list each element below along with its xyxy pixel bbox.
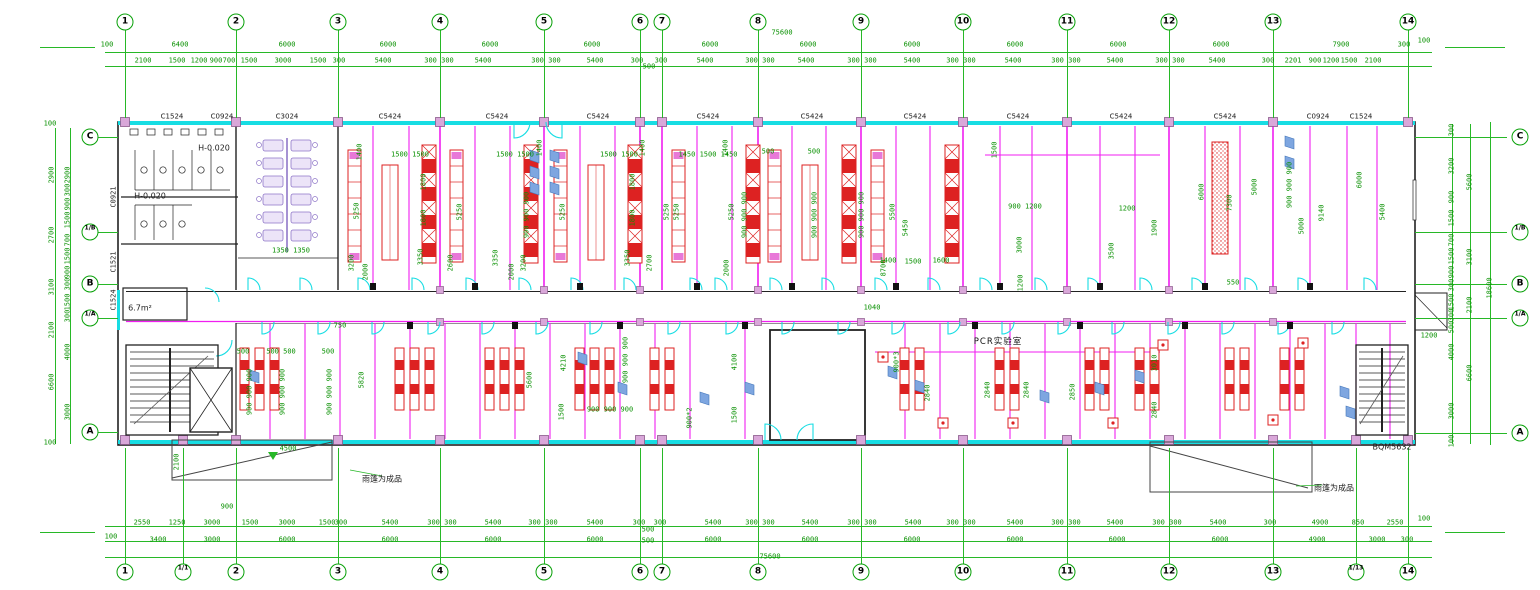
dimension-label: 300 (1264, 520, 1277, 527)
dimension-label: 6000 (382, 537, 399, 544)
dimension-label: 6000 (485, 537, 502, 544)
dimension-label: 5400 (1007, 520, 1024, 527)
window-code-label: C5424 (801, 114, 824, 121)
dimension-label: 6000 (1199, 184, 1206, 201)
axis-extension-top (338, 30, 339, 118)
dimension-label: 3200 (521, 255, 528, 272)
dimension-label: 5400 (1380, 204, 1387, 221)
window-code-label: C1521 (111, 251, 118, 272)
annotation-label: H-0.020 (134, 192, 166, 201)
dimension-label: 2840 (925, 385, 932, 402)
dimension-label: 1400 (880, 258, 897, 265)
dimension-label: 2840 (1152, 402, 1159, 419)
bottom-dim-line (105, 541, 1432, 542)
window-code-label: C5424 (1214, 114, 1237, 121)
axis-bubble-right-C: C (1512, 129, 1529, 146)
dimension-label: 5400 (904, 58, 921, 65)
dimension-label: 700 (1449, 234, 1456, 247)
dimension-label: 1250 (169, 520, 186, 527)
axis-bubble-bottom-11: 11 (1059, 564, 1076, 581)
axis-extension-bottom (1067, 448, 1068, 564)
dimension-label: 1500 (1449, 248, 1456, 265)
dimension-label: 300 300 (745, 58, 775, 65)
dimension-label: 5250 (354, 203, 361, 220)
dimension-label: 300 300 (847, 58, 877, 65)
dimension-label: 1500 (65, 294, 72, 311)
dimension-label: 300 300 (1155, 58, 1185, 65)
dimension-label: 900 900 900 (327, 369, 334, 415)
dimension-label: 900 900 900 (247, 369, 254, 415)
dimension-label: 2840 (1024, 382, 1031, 399)
dimension-label: 500 (808, 149, 821, 156)
dimension-label: 1500 (559, 404, 566, 421)
dimension-label: 1400 (640, 140, 647, 157)
axis-bubble-left-C: C (82, 129, 99, 146)
axis-extension-top (236, 30, 237, 118)
window-code-label: C0921 (111, 186, 118, 207)
axis-extension-top (1067, 30, 1068, 118)
dimension-label: 1500 (241, 58, 258, 65)
dimension-label: 900 (65, 198, 72, 211)
dimension-label: 500 (643, 64, 656, 71)
dimension-label: 3100 (49, 279, 56, 296)
axis-extension-top (662, 30, 663, 118)
dimension-label: 5600 (527, 372, 534, 389)
dimension-label: 900 900 900 (524, 192, 531, 238)
corner-dim (40, 47, 95, 48)
dimension-label: 300 300 (1152, 520, 1182, 527)
dimension-label: 300 300 (745, 520, 775, 527)
dimension-label: 2700 (49, 227, 56, 244)
window-code-label: C1524 (1350, 114, 1373, 121)
dimension-label: 2700 (647, 255, 654, 272)
axis-extension-bottom (963, 448, 964, 564)
axis-extension-bottom (861, 448, 862, 564)
dimension-label: 3000 (1449, 403, 1456, 420)
axis-extension-bottom (125, 448, 126, 564)
dimension-label: 3400 (150, 537, 167, 544)
dimension-label: 6000 (587, 537, 604, 544)
dimension-label: 1500 (242, 520, 259, 527)
dimension-label: 75600 (771, 30, 792, 37)
dimension-label: 6400 (172, 42, 189, 49)
annotation-label: H-0.020 (198, 144, 230, 153)
dimension-label: 300 (1449, 124, 1456, 137)
axis-extension-bottom (338, 448, 339, 564)
window-code-label: C5424 (486, 114, 509, 121)
axis-bubble-top-7: 7 (654, 14, 671, 31)
dimension-label: 4000 (65, 344, 72, 361)
dimension-label: 3500 (1109, 243, 1116, 260)
axis-bubble-top-13: 13 (1265, 14, 1282, 31)
dimension-label: 9140 (1319, 205, 1326, 222)
dimension-label: 300 300 (528, 520, 558, 527)
dimension-label: 5400 (587, 520, 604, 527)
dimension-label: 6000 (1109, 537, 1126, 544)
axis-extension-bottom (1169, 448, 1170, 564)
dimension-label: 900 (65, 266, 72, 279)
axis-bubble-bottom-1/1: 1/1 (175, 564, 192, 581)
annotation-label: PCR实验室 (974, 335, 1022, 347)
dimension-label: 1800 (421, 174, 428, 191)
axis-extension-top (544, 30, 545, 118)
dimension-label: 750 (334, 323, 347, 330)
dimension-label: 6000 (482, 42, 499, 49)
dimension-label: 2000 (363, 264, 370, 281)
dimension-label: 4100 (732, 354, 739, 371)
axis-extension-bottom (662, 448, 663, 564)
dimension-label: 6000 (904, 537, 921, 544)
window-code-label: C5424 (1110, 114, 1133, 121)
dimension-label: 1500 (905, 259, 922, 266)
axis-extension-top (963, 30, 964, 118)
axis-extension-left (98, 137, 118, 138)
dimension-label: 500 (237, 349, 250, 356)
dimension-label: 100 (44, 121, 57, 128)
lab-benches-north (348, 142, 1228, 263)
dimension-label: 2550 (1387, 520, 1404, 527)
dimension-label: 5400 (382, 520, 399, 527)
dimension-label: 5400 (1210, 520, 1227, 527)
dimension-label: 300 (1449, 279, 1456, 292)
dimension-label: 900 900 900 (742, 192, 749, 238)
axis-extension-bottom (236, 448, 237, 564)
window-code-label: C5424 (697, 114, 720, 121)
dimension-label: 6000 (1212, 537, 1229, 544)
dimension-label: 300 300 (946, 520, 976, 527)
dimension-label: 1200 (1421, 333, 1438, 340)
floor-plan-drawing (0, 0, 1540, 590)
dimension-label: 1500 (319, 520, 336, 527)
axis-bubble-top-6: 6 (632, 14, 649, 31)
dimension-label: 5000 (1299, 218, 1306, 235)
dimension-label: 5400 (1107, 520, 1124, 527)
dimension-label: 300 (65, 184, 72, 197)
dimension-label: 7300 (1227, 195, 1234, 212)
dimension-label: 4210 (561, 355, 568, 372)
dimension-label: 1500 1500 (600, 152, 638, 159)
dimension-label: 2100 (135, 58, 152, 65)
dimension-label: 2850 (1070, 384, 1077, 401)
axis-bubble-bottom-1: 1 (117, 564, 134, 581)
dimension-label: 5400 (697, 58, 714, 65)
north-window-band (118, 121, 1415, 125)
dimension-label: 500 (1449, 321, 1456, 334)
dimension-label: 500 (642, 527, 655, 534)
axis-extension-right (1415, 318, 1507, 319)
dimension-label: 900 900 900 (623, 337, 630, 383)
dimension-label: 3000 (1369, 537, 1386, 544)
axis-extension-top (440, 30, 441, 118)
dimension-label: 5400 (802, 520, 819, 527)
axis-extension-bottom (640, 448, 641, 564)
dimension-label: 100 (101, 42, 114, 49)
axis-extension-bottom (544, 448, 545, 564)
dimension-label: 300 300 (531, 58, 561, 65)
dimension-label: 75600 (759, 554, 780, 561)
axis-bubble-right-1/A: 1/A (1512, 310, 1529, 327)
dimension-label: 1500 (1341, 58, 1358, 65)
axis-extension-bottom (758, 448, 759, 564)
axis-bubble-top-1: 1 (117, 14, 134, 31)
dimension-label: 5400 (1005, 58, 1022, 65)
dimension-label: 300 300 (1051, 58, 1081, 65)
corner-dim (1445, 532, 1505, 533)
axis-bubble-bottom-6: 6 (632, 564, 649, 581)
dimension-label: 5250 (729, 204, 736, 221)
dimension-label: 1040 (864, 305, 881, 312)
dimension-label: 3000 (204, 520, 221, 527)
window-code-label: C0924 (211, 114, 234, 121)
axis-bubble-bottom-13: 13 (1265, 564, 1282, 581)
dimension-label: 500 (642, 538, 655, 545)
dimension-label: 300 300 (424, 58, 454, 65)
south-partitions (236, 323, 1390, 440)
corridor (126, 292, 1406, 324)
dimension-label: 2550 (134, 520, 151, 527)
dimension-label: 2201 (1285, 58, 1302, 65)
dimension-label: 4500 (280, 446, 297, 453)
dimension-label: 900 900 900 (859, 192, 866, 238)
dimension-label: 1400 (723, 140, 730, 157)
dimension-label: 5400 (1107, 58, 1124, 65)
dimension-label: 6000 (380, 42, 397, 49)
dimension-label: 4000 (1449, 344, 1456, 361)
dimension-label: 6000 (702, 42, 719, 49)
axis-bubble-top-5: 5 (536, 14, 553, 31)
dimension-label: 1350 1350 (272, 248, 310, 255)
axis-bubble-top-2: 2 (228, 14, 245, 31)
dimension-label: 5400 (485, 520, 502, 527)
dimension-label: 5400 (905, 520, 922, 527)
dimension-label: 300 (655, 58, 668, 65)
dimension-label: 5250 (674, 204, 681, 221)
dimension-label: 1800 (630, 210, 637, 227)
dimension-label: 2100 (1365, 58, 1382, 65)
axis-bubble-top-12: 12 (1161, 14, 1178, 31)
axis-extension-top (758, 30, 759, 118)
axis-bubble-top-14: 14 (1400, 14, 1417, 31)
axis-extension-bottom (440, 448, 441, 564)
axis-extension-top (861, 30, 862, 118)
dimension-label: 4900 (1312, 520, 1329, 527)
dimension-label: 1600 (933, 258, 950, 265)
top-dim-line (105, 52, 1432, 53)
axis-extension-left (98, 318, 118, 319)
axis-bubble-bottom-12: 12 (1161, 564, 1178, 581)
dimension-label: 900 900 900 (812, 192, 819, 238)
dimension-label: 550 (1227, 280, 1240, 287)
dimension-label: 500 500 (266, 349, 296, 356)
dimension-label: 2100 (1467, 297, 1474, 314)
dimension-label: 2900 (65, 167, 72, 184)
dimension-label: 5600 (1467, 174, 1474, 191)
side-stub-east (1415, 293, 1447, 330)
dimension-label: 700 (223, 58, 236, 65)
dimension-label: 1400 (357, 144, 364, 161)
dimension-label: 1500 (992, 142, 999, 159)
dimension-label: 1500 (169, 58, 186, 65)
axis-bubble-top-11: 11 (1059, 14, 1076, 31)
dimension-label: 1800 (630, 174, 637, 191)
dimension-label: 1500 1500 (496, 152, 534, 159)
dimension-label: 2000 (509, 264, 516, 281)
dimension-label: 2840 (985, 382, 992, 399)
dimension-label: 2000 (724, 260, 731, 277)
dimension-label: 900 900 900 (587, 407, 633, 414)
dimension-label: 850 (1352, 520, 1365, 527)
dimension-label: 6000 (279, 537, 296, 544)
axis-extension-bottom (1408, 448, 1409, 564)
axis-extension-top (1169, 30, 1170, 118)
dimension-label: 3200 (1449, 158, 1456, 175)
dimension-label: 5400 (1209, 58, 1226, 65)
dimension-label: 6600 (49, 374, 56, 391)
axis-bubble-top-9: 9 (853, 14, 870, 31)
dimension-label: 3000 (279, 520, 296, 527)
dimension-label: 700 (65, 234, 72, 247)
axis-bubble-top-4: 4 (432, 14, 449, 31)
axis-bubble-left-1/A: 1/A (82, 310, 99, 327)
axis-extension-bottom (1356, 448, 1357, 564)
dimension-label: 1900 (1152, 220, 1159, 237)
canopy-west (172, 440, 382, 480)
axis-bubble-top-8: 8 (750, 14, 767, 31)
dimension-label: 900 1200 (1008, 204, 1042, 211)
stair-east (1356, 345, 1408, 435)
dimension-label: 900 (1449, 266, 1456, 279)
dimension-label: 6000 (279, 42, 296, 49)
dimension-label: 900 900 900 (1287, 162, 1294, 208)
dimension-label: 5250 (664, 204, 671, 221)
dimension-label: 6000 (584, 42, 601, 49)
dimension-label: 18600 (1487, 277, 1494, 298)
axis-bubble-left-1/B: 1/B (82, 224, 99, 241)
dimension-label: 3100 (1467, 249, 1474, 266)
window-code-label: C3024 (276, 114, 299, 121)
dimension-label: 900 900 900 (280, 369, 287, 415)
dimension-label: 5400 (475, 58, 492, 65)
dimension-label: 3350 (493, 250, 500, 267)
dimension-label: 300 (1262, 58, 1275, 65)
dimension-label: 900 (1309, 58, 1322, 65)
dimension-label: 300 (1398, 42, 1411, 49)
dimension-label: 3200 (349, 255, 356, 272)
axis-bubble-bottom-2: 2 (228, 564, 245, 581)
annotation-label: 6.7m² (128, 304, 152, 313)
window-code-label: C5424 (587, 114, 610, 121)
dimension-label: 5500 (890, 204, 897, 221)
dimension-label: 3350 (625, 250, 632, 267)
dimension-label: 5400 (375, 58, 392, 65)
axis-bubble-bottom-7: 7 (654, 564, 671, 581)
axis-bubble-bottom-5: 5 (536, 564, 553, 581)
canopy-east (1150, 442, 1322, 492)
dimension-label: 3000 (65, 404, 72, 421)
dimension-label: 6000 (1007, 42, 1024, 49)
dimension-label: 900*2 (687, 407, 694, 428)
window-code-label: C5424 (904, 114, 927, 121)
dimension-label: 2100 (49, 322, 56, 339)
dimension-label: 3000 (275, 58, 292, 65)
dimension-label: 900 (1449, 191, 1456, 204)
axis-bubble-right-1/B: 1/B (1512, 224, 1529, 241)
dimension-label: 300 (631, 58, 644, 65)
window-code-label: C1524 (111, 289, 118, 310)
axis-bubble-bottom-8: 8 (750, 564, 767, 581)
dimension-label: 300 (335, 520, 348, 527)
dimension-label: 5820 (359, 372, 366, 389)
dimension-label: 6600 (1467, 365, 1474, 382)
dimension-label: 2600 (448, 255, 455, 272)
dimension-label: 1500 (732, 407, 739, 424)
axis-extension-bottom (1273, 448, 1274, 564)
dimension-label: 3000 (204, 537, 221, 544)
axis-extension-top (125, 30, 126, 118)
dimension-label: 300 (654, 520, 667, 527)
dimension-label: 1500 (310, 58, 327, 65)
window-code-label: C1524 (161, 114, 184, 121)
dimension-label: 900 (210, 58, 223, 65)
dimension-label: 6000 (1110, 42, 1127, 49)
axis-bubble-right-B: B (1512, 276, 1529, 293)
dimension-label: 300 300 (427, 520, 457, 527)
dimension-label: 1500 1500 (391, 152, 429, 159)
dimension-label: 300 300 (946, 58, 976, 65)
top-dim-line (105, 66, 1432, 67)
floorplan-sheet: 123456789101112131411/123456789101112131… (0, 0, 1540, 590)
axis-bubble-left-B: B (82, 276, 99, 293)
window-code-label: C5424 (379, 114, 402, 121)
dimension-label: 3350 (418, 249, 425, 266)
dimension-label: 300 (333, 58, 346, 65)
dimension-label: 100 (1449, 435, 1456, 448)
dimension-label: 3000 (1017, 237, 1024, 254)
axis-extension-bottom (183, 448, 184, 564)
dimension-label: 500 (322, 349, 335, 356)
axis-bubble-left-A: A (82, 424, 99, 441)
dimension-label: 2900 (49, 167, 56, 184)
dimension-label: 100 (105, 534, 118, 541)
dimension-label: 1500 (1449, 210, 1456, 227)
dimension-label: 3010 (1152, 355, 1159, 372)
dimension-label: 4900 (1309, 537, 1326, 544)
corner-dim (1445, 47, 1505, 48)
dimension-label: 1500 (65, 212, 72, 229)
dimension-label: 900 (221, 504, 234, 511)
dimension-label: 1500 (65, 248, 72, 265)
dimension-label: 1800 (421, 210, 428, 227)
dimension-label: 300 300 (847, 520, 877, 527)
dimension-label: 1200 (191, 58, 208, 65)
dimension-label: 6000 (800, 42, 817, 49)
dimension-label: 300 (65, 310, 72, 323)
dimension-label: 6000 (802, 537, 819, 544)
window-code-label: C5424 (1007, 114, 1030, 121)
dimension-label: 5400 (587, 58, 604, 65)
dimension-label: 5250 (560, 204, 567, 221)
axis-bubble-bottom-14: 14 (1400, 564, 1417, 581)
annotation-label: 雨篷为成品 (362, 474, 402, 485)
dimension-label: 900*3 (894, 351, 901, 372)
dimension-label: 2100 (174, 454, 181, 471)
axis-bubble-right-A: A (1512, 425, 1529, 442)
dimension-label: 100 (44, 440, 57, 447)
window-code-label: C0924 (1307, 114, 1330, 121)
axis-extension-right (1415, 232, 1507, 233)
axis-bubble-bottom-3: 3 (330, 564, 347, 581)
axis-bubble-top-10: 10 (955, 14, 972, 31)
